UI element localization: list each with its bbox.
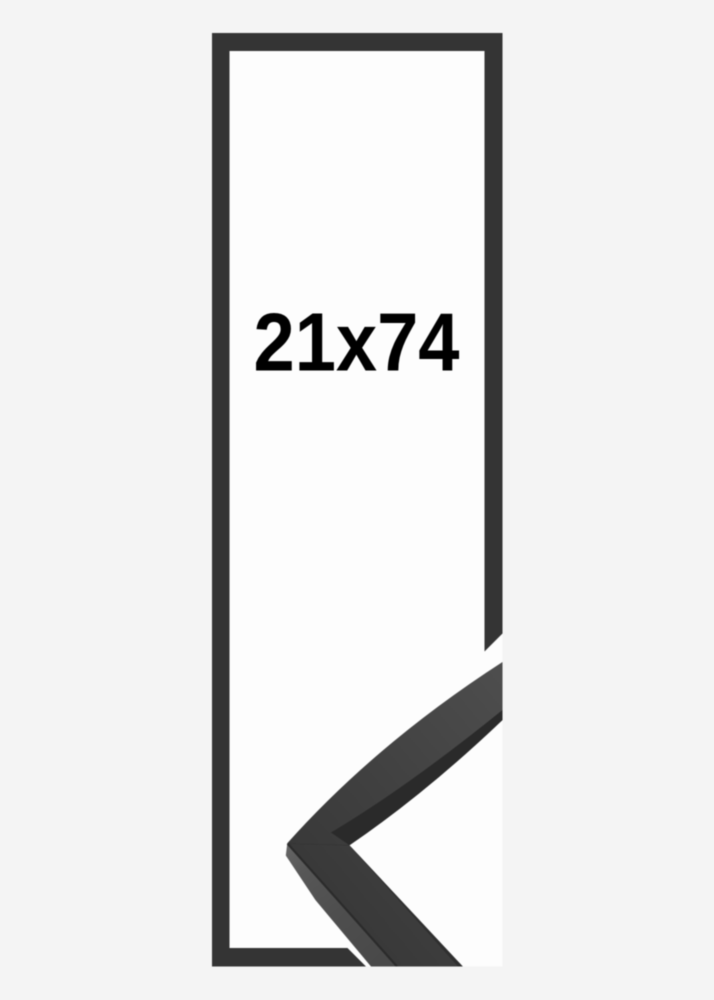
svg-text:21x74: 21x74 bbox=[254, 296, 460, 389]
